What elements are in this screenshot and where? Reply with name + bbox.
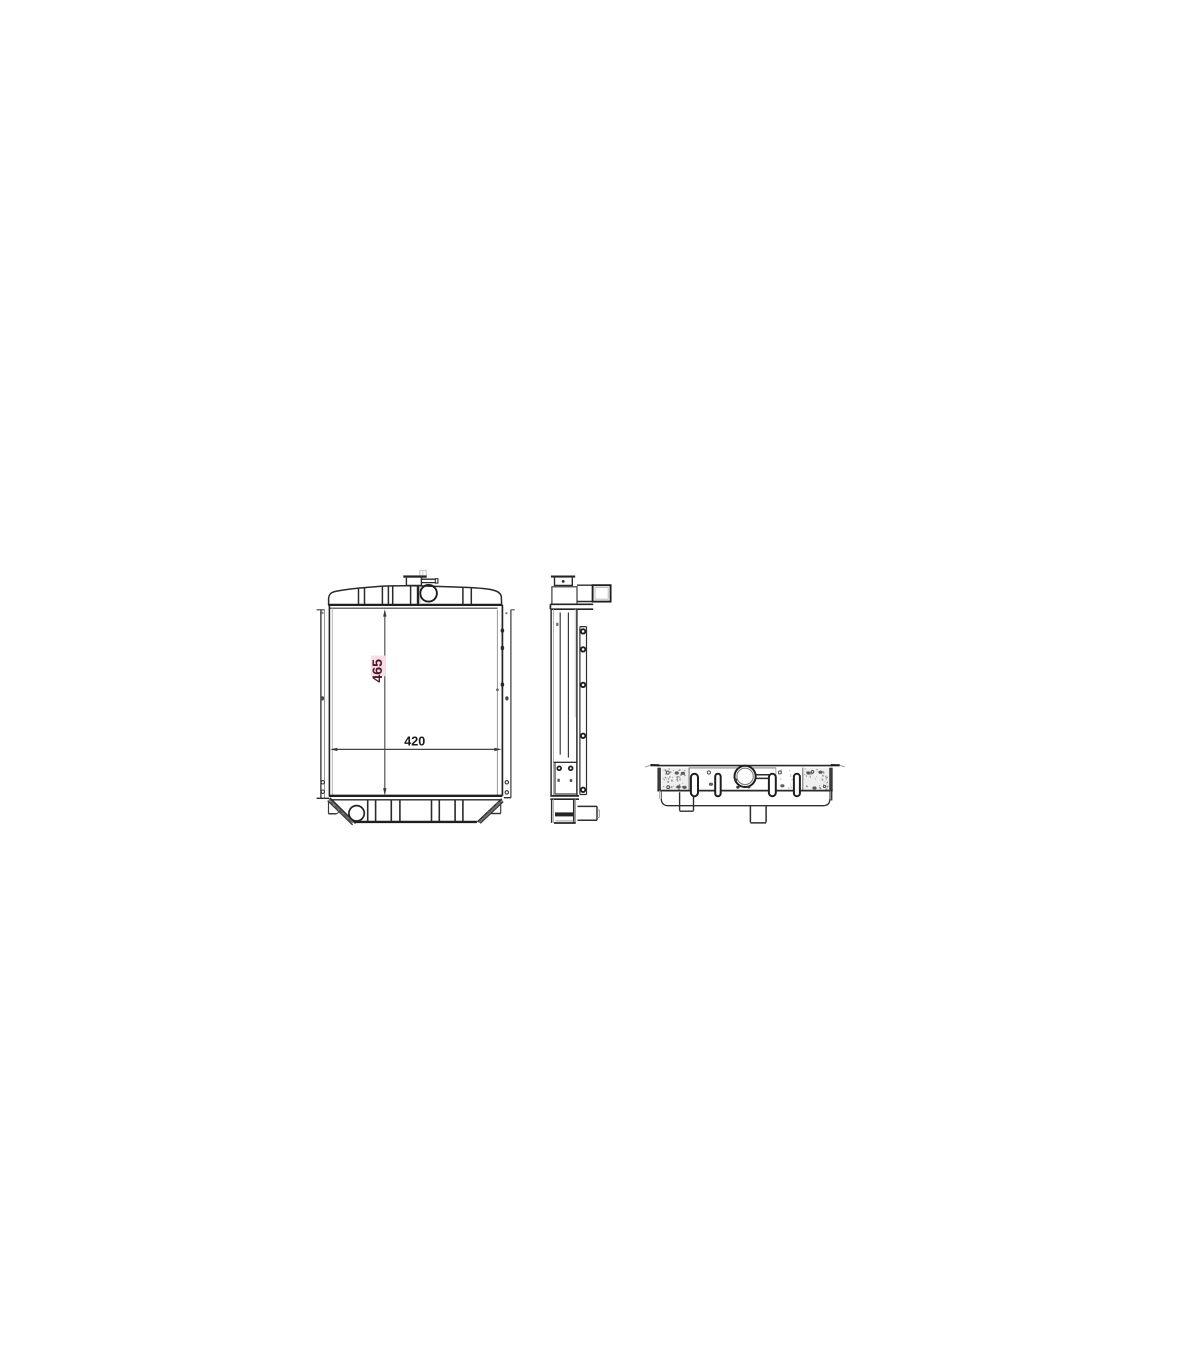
svg-text:465: 465 (370, 659, 386, 683)
svg-text:420: 420 (404, 735, 425, 749)
